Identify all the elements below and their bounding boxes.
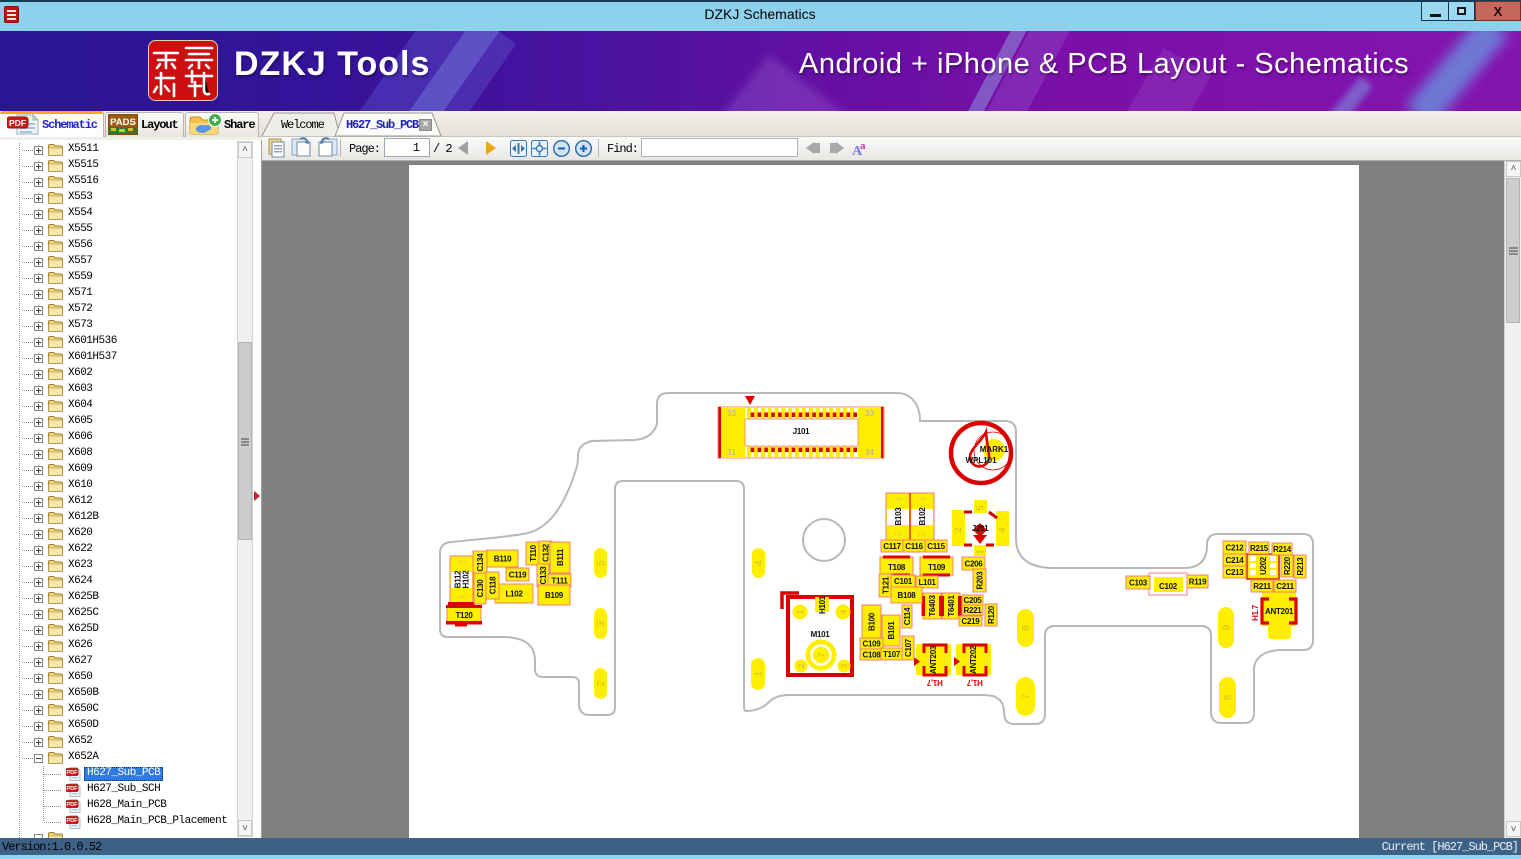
svg-text:C118: C118 (489, 576, 498, 594)
svg-text:3: 3 (840, 663, 849, 668)
svg-text:PDF: PDF (67, 802, 79, 808)
svg-text:C102: C102 (1159, 582, 1178, 591)
svg-text:T107: T107 (883, 650, 901, 659)
svg-text:C115: C115 (927, 542, 945, 551)
svg-text:T108: T108 (888, 563, 906, 572)
svg-text:B102: B102 (918, 507, 927, 526)
svg-text:L102: L102 (505, 590, 523, 599)
svg-text:C219: C219 (962, 617, 981, 626)
svg-text:J101: J101 (793, 427, 810, 436)
svg-text:PDF: PDF (67, 786, 79, 792)
svg-text:H1,7: H1,7 (926, 678, 943, 687)
svg-text:ANT202: ANT202 (969, 645, 978, 674)
svg-text:C117: C117 (883, 542, 901, 551)
svg-text:1: 1 (458, 594, 467, 599)
svg-text:C205: C205 (964, 596, 983, 605)
svg-text:2: 2 (953, 527, 963, 532)
svg-text:4: 4 (839, 609, 848, 614)
svg-text:MARK1: MARK1 (980, 445, 1009, 454)
svg-text:C114: C114 (903, 607, 912, 625)
svg-text:C119: C119 (509, 571, 527, 580)
svg-text:B101: B101 (887, 621, 896, 640)
svg-text:a: a (860, 140, 866, 152)
svg-text:5: 5 (596, 560, 607, 566)
svg-text:PADS: PADS (110, 117, 136, 128)
svg-text:C206: C206 (965, 560, 984, 569)
svg-text:PDF: PDF (67, 818, 79, 824)
svg-text:T6401: T6401 (947, 595, 956, 617)
svg-text:33: 33 (727, 409, 736, 418)
svg-text:4: 4 (997, 527, 1007, 532)
svg-text:1: 1 (894, 496, 903, 501)
svg-text:2: 2 (918, 531, 927, 536)
svg-text:B108: B108 (898, 591, 917, 600)
svg-text:C107: C107 (904, 638, 913, 657)
svg-text:H101: H101 (818, 595, 827, 614)
svg-text:C134: C134 (476, 553, 485, 572)
svg-text:2: 2 (458, 559, 467, 564)
svg-text:C213: C213 (1226, 568, 1245, 577)
svg-text:C214: C214 (1226, 556, 1245, 565)
svg-text:31: 31 (727, 448, 736, 457)
svg-text:1: 1 (796, 609, 805, 614)
svg-text:C133: C133 (539, 566, 548, 585)
svg-text:T109: T109 (928, 563, 946, 572)
svg-text:1: 1 (975, 549, 985, 554)
svg-text:ANT203: ANT203 (929, 645, 938, 674)
svg-text:R221: R221 (964, 606, 983, 615)
svg-text:3: 3 (596, 620, 607, 626)
svg-text:C212: C212 (1226, 544, 1245, 553)
svg-text:C116: C116 (905, 542, 923, 551)
svg-text:T6403: T6403 (928, 595, 937, 617)
svg-text:5: 5 (975, 505, 985, 510)
svg-text:2: 2 (596, 680, 607, 686)
svg-text:H1,7: H1,7 (966, 678, 983, 687)
svg-text:J201: J201 (972, 524, 989, 533)
svg-text:T120: T120 (455, 611, 473, 620)
svg-text:R215: R215 (1250, 544, 1269, 553)
svg-text:R214: R214 (1273, 545, 1292, 554)
svg-text:7: 7 (1021, 693, 1032, 699)
svg-text:B109: B109 (545, 591, 564, 600)
svg-text:R220: R220 (1283, 556, 1292, 575)
svg-text:L101: L101 (918, 578, 936, 587)
svg-text:ANT201: ANT201 (1265, 607, 1294, 616)
svg-text:2: 2 (797, 663, 806, 668)
svg-text:33: 33 (865, 409, 874, 418)
svg-text:9: 9 (1222, 624, 1233, 630)
svg-text:34: 34 (865, 448, 874, 457)
svg-text:C101: C101 (894, 577, 913, 586)
svg-text:2: 2 (894, 531, 903, 536)
svg-text:R203: R203 (976, 571, 985, 590)
svg-text:R120: R120 (987, 605, 996, 624)
svg-text:1: 1 (754, 671, 765, 677)
svg-text:U202: U202 (1259, 556, 1268, 575)
svg-text:B103: B103 (894, 507, 903, 526)
svg-text:B111: B111 (556, 548, 565, 566)
svg-text:T121: T121 (882, 576, 891, 594)
svg-text:C103: C103 (1129, 579, 1148, 588)
svg-text:C109: C109 (863, 640, 882, 649)
svg-text:R211: R211 (1253, 582, 1271, 591)
svg-text:C108: C108 (863, 651, 882, 660)
svg-text:8: 8 (1223, 694, 1234, 700)
svg-text:B110: B110 (494, 555, 512, 564)
svg-text:R213: R213 (1296, 557, 1305, 576)
svg-text:6: 6 (1021, 625, 1032, 631)
svg-text:M101: M101 (811, 630, 831, 639)
svg-text:WPL101: WPL101 (965, 456, 997, 465)
svg-text:B100: B100 (868, 612, 877, 631)
svg-text:C130: C130 (476, 579, 485, 598)
svg-text:PDF: PDF (67, 770, 79, 776)
svg-text:1: 1 (918, 496, 927, 501)
svg-text:H1.7: H1.7 (1251, 604, 1260, 621)
svg-text:T111: T111 (551, 577, 568, 586)
svg-text:7: 7 (817, 652, 826, 657)
svg-text:H102: H102 (461, 570, 470, 589)
svg-text:T110: T110 (529, 544, 538, 561)
svg-text:R119: R119 (1189, 578, 1207, 587)
svg-text:C211: C211 (1276, 582, 1294, 591)
svg-text:C132: C132 (542, 543, 551, 562)
svg-text:PDF: PDF (9, 118, 26, 128)
svg-text:4: 4 (754, 560, 765, 566)
